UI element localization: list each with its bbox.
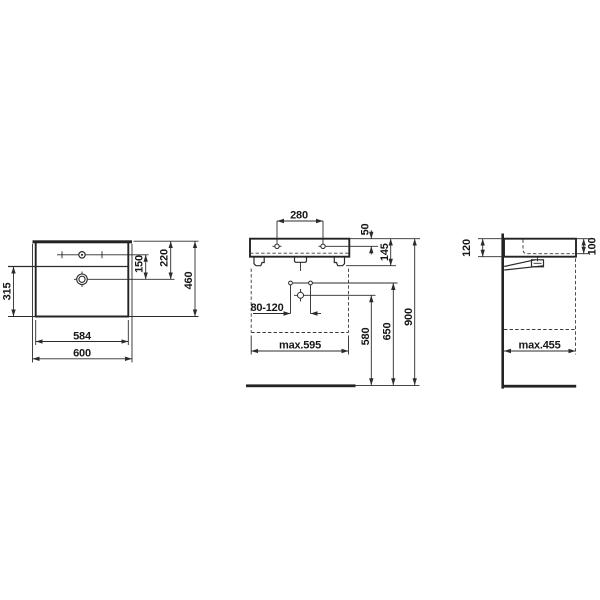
front-mounting-hole-right	[321, 244, 325, 248]
plan-drain-inner	[79, 276, 85, 282]
dim-label-max595: max.595	[279, 340, 321, 352]
dim-trap-height-580: 580	[360, 295, 372, 385]
front-floor-line	[246, 384, 356, 387]
dim-hole-spacing-280: 280	[277, 210, 323, 222]
front-supply-connection-right	[309, 281, 313, 285]
dim-label-600: 600	[73, 348, 91, 360]
side-floor-line	[504, 385, 576, 388]
dim-rim-height-900: 900	[403, 239, 415, 386]
dim-label-460: 460	[183, 272, 195, 290]
front-clearance-outline	[251, 269, 348, 333]
side-inner-bowl-outline	[523, 240, 575, 254]
front-left-fixing-lug	[254, 257, 264, 266]
dim-body-width-584: 584	[36, 331, 129, 343]
dim-label-580: 580	[360, 328, 372, 346]
bracket-top-edge	[504, 260, 535, 267]
dim-label-220: 220	[159, 249, 171, 267]
dim-label-280: 280	[290, 210, 308, 222]
front-supply-connection-left	[289, 281, 293, 285]
dim-label-80-120: 80-120	[250, 302, 283, 314]
dim-tap-to-drain-150: 150	[134, 255, 146, 279]
dim-height-145: 145	[379, 239, 391, 266]
dim-total-depth-460: 460	[183, 241, 195, 316]
dim-label-120: 120	[461, 239, 473, 257]
dim-label-150: 150	[134, 255, 146, 273]
dim-label-50: 50	[360, 224, 372, 236]
dim-label-100: 100	[586, 238, 598, 256]
front-body-outline	[250, 239, 349, 257]
dim-bowl-depth-315: 315	[2, 267, 14, 317]
dim-label-145: 145	[379, 243, 391, 261]
washbasin-dimension-drawing: 315 584 600 150 220 460	[0, 0, 600, 600]
front-trap-position	[298, 292, 304, 298]
plan-back-rim	[33, 240, 133, 243]
dim-back-height-120: 120	[461, 239, 483, 257]
dim-label-900: 900	[403, 308, 415, 326]
front-right-fixing-lug	[334, 257, 344, 266]
dim-label-max455: max.455	[518, 339, 560, 351]
technical-drawing-page: 315 584 600 150 220 460	[0, 0, 600, 600]
plan-view: 315 584 600 150 220 460	[2, 240, 199, 362]
dim-label-650: 650	[382, 323, 394, 341]
dim-total-width-600: 600	[33, 348, 133, 360]
dim-max-depth-455: max.455	[504, 339, 576, 351]
front-view: 280 50 145 80-120 580 650 900	[246, 210, 420, 388]
side-mounting-bracket	[504, 257, 543, 270]
side-view: 120 100 max.455	[461, 234, 598, 389]
dim-label-315: 315	[2, 283, 14, 301]
dim-supply-height-650: 650	[382, 283, 394, 385]
dim-max-width-595: max.595	[251, 340, 348, 352]
dim-label-584: 584	[73, 331, 92, 343]
dim-back-to-drain-220: 220	[159, 241, 171, 279]
dim-front-depth-100: 100	[584, 238, 599, 256]
plan-tap-hole-center	[81, 254, 83, 256]
front-mounting-hole-left	[275, 244, 279, 248]
